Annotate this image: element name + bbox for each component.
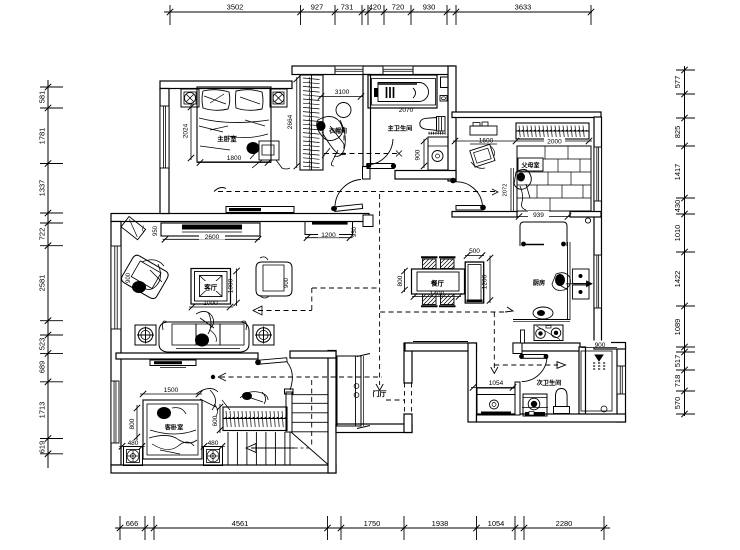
svg-text:1200: 1200 — [482, 274, 489, 289]
svg-text:950: 950 — [352, 226, 358, 237]
svg-text:619: 619 — [38, 441, 47, 454]
svg-text:2600: 2600 — [205, 234, 220, 241]
svg-text:1010: 1010 — [673, 225, 682, 242]
svg-text:1800: 1800 — [227, 155, 242, 162]
svg-text:1054: 1054 — [489, 380, 504, 387]
svg-text:825: 825 — [673, 126, 682, 139]
svg-text:1750: 1750 — [364, 519, 381, 528]
svg-text:厨房: 厨房 — [533, 279, 545, 287]
svg-text:2280: 2280 — [556, 519, 573, 528]
svg-text:581: 581 — [38, 91, 47, 104]
svg-text:500: 500 — [469, 248, 480, 255]
svg-text:2070: 2070 — [399, 107, 414, 114]
svg-text:1337: 1337 — [38, 180, 47, 197]
svg-text:570: 570 — [673, 397, 682, 410]
svg-text:2581: 2581 — [38, 275, 47, 292]
svg-text:1938: 1938 — [432, 519, 449, 528]
svg-text:900: 900 — [284, 277, 290, 288]
svg-text:927: 927 — [311, 3, 324, 12]
svg-text:689: 689 — [38, 361, 47, 374]
svg-text:4561: 4561 — [232, 519, 249, 528]
svg-text:主卧室: 主卧室 — [217, 134, 237, 143]
svg-text:930: 930 — [423, 3, 436, 12]
svg-text:900: 900 — [415, 149, 422, 160]
svg-text:1200: 1200 — [321, 232, 336, 239]
svg-text:1400: 1400 — [430, 291, 445, 298]
svg-text:1000: 1000 — [228, 278, 235, 293]
svg-text:1417: 1417 — [673, 164, 682, 181]
svg-text:420: 420 — [369, 3, 382, 12]
svg-text:1000: 1000 — [203, 300, 218, 307]
svg-text:722: 722 — [38, 228, 47, 241]
svg-text:3100: 3100 — [335, 89, 350, 96]
svg-text:800: 800 — [397, 275, 404, 286]
svg-text:900: 900 — [595, 342, 606, 349]
svg-text:718: 718 — [673, 375, 682, 388]
svg-text:1089: 1089 — [673, 319, 682, 336]
svg-text:2000: 2000 — [547, 139, 562, 146]
svg-text:1054: 1054 — [488, 519, 505, 528]
svg-text:900: 900 — [126, 272, 132, 283]
svg-text:731: 731 — [341, 3, 354, 12]
svg-text:1422: 1422 — [673, 271, 682, 288]
svg-text:600: 600 — [212, 415, 219, 426]
svg-text:666: 666 — [126, 519, 139, 528]
svg-text:3633: 3633 — [515, 3, 532, 12]
svg-text:2072: 2072 — [503, 184, 509, 197]
svg-text:720: 720 — [392, 3, 405, 12]
svg-text:430: 430 — [673, 200, 682, 213]
svg-text:次卫生间: 次卫生间 — [537, 379, 562, 387]
svg-text:客卧室: 客卧室 — [164, 424, 184, 432]
svg-text:1781: 1781 — [38, 128, 47, 145]
svg-text:2024: 2024 — [183, 123, 190, 138]
svg-text:餐厅: 餐厅 — [430, 279, 445, 288]
svg-text:950: 950 — [153, 225, 159, 236]
svg-text:2664: 2664 — [287, 114, 294, 129]
svg-text:1500: 1500 — [164, 387, 179, 394]
svg-text:1713: 1713 — [38, 402, 47, 419]
svg-text:577: 577 — [673, 76, 682, 89]
svg-text:父母室: 父母室 — [520, 162, 539, 170]
svg-text:939: 939 — [533, 212, 544, 219]
svg-text:主卫生间: 主卫生间 — [388, 125, 413, 133]
svg-text:800: 800 — [129, 418, 136, 429]
svg-text:3502: 3502 — [227, 3, 244, 12]
svg-text:517: 517 — [673, 355, 682, 368]
svg-text:客厅: 客厅 — [203, 283, 218, 292]
svg-text:523: 523 — [38, 338, 47, 351]
